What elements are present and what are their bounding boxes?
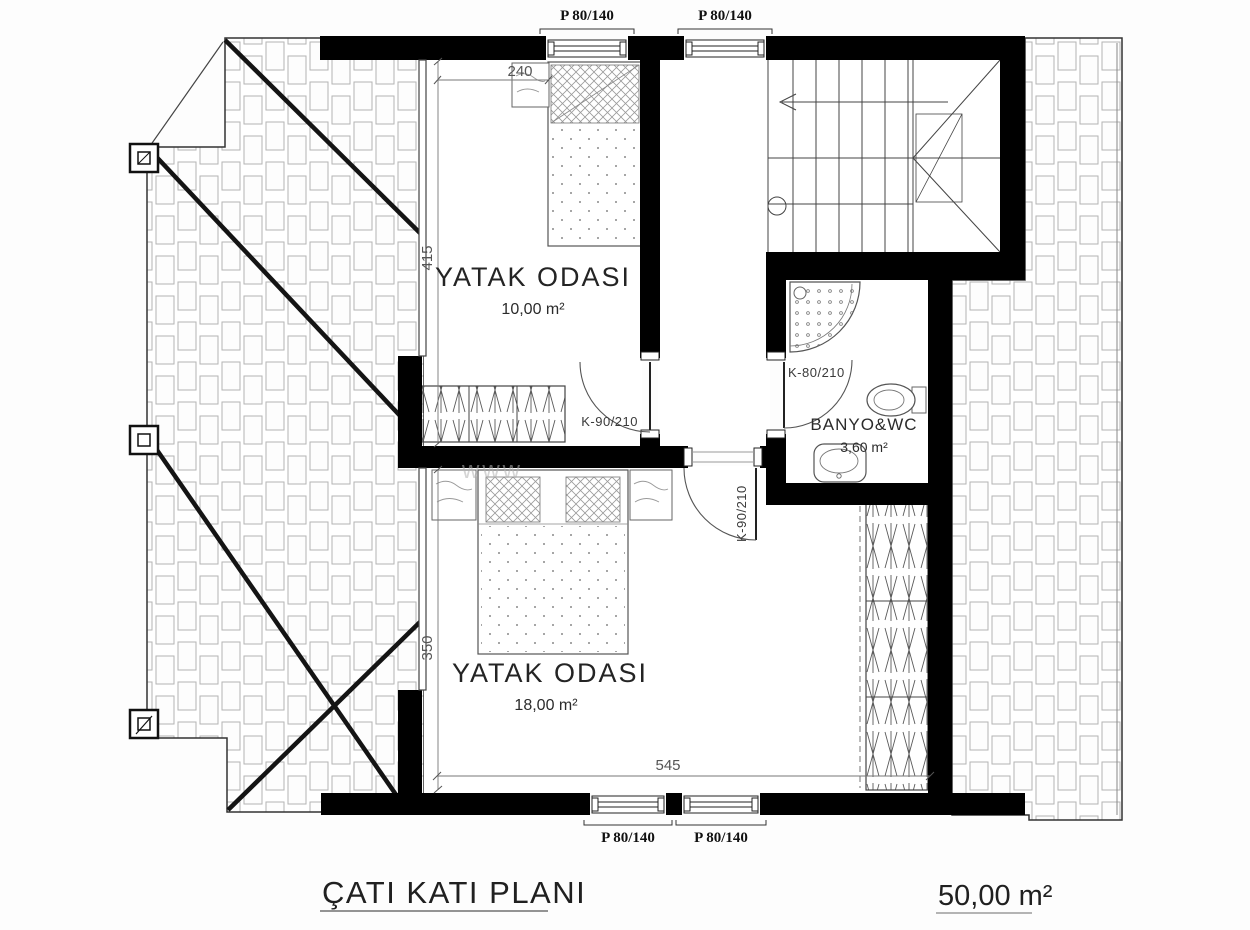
roof-left (147, 38, 424, 812)
post-marker-middle (130, 426, 158, 454)
wardrobe-bedroom1 (421, 386, 565, 442)
door-label: K-90/210 (734, 485, 749, 542)
window-label: P 80/140 (694, 830, 748, 846)
plan-title: ÇATI KATI PLANI (322, 875, 586, 910)
door-label: K-90/210 (581, 414, 638, 429)
post-marker-bottom (130, 710, 158, 738)
stairwell-floor (766, 58, 1002, 254)
shower-drain (794, 287, 806, 299)
toilet (867, 384, 926, 416)
dimension-label: 545 (655, 757, 680, 774)
window-label: P 80/140 (560, 8, 614, 24)
bathroom-name: BANYO&WC (810, 415, 917, 434)
dimension-label: 350 (419, 635, 436, 660)
floor-plan-canvas: P 80/140 P 80/140 P 80/140 P 80/140 K-90… (0, 0, 1250, 930)
double-bed (478, 470, 628, 654)
pillow (566, 477, 620, 522)
single-bed (548, 62, 642, 246)
mattress (481, 526, 625, 652)
nightstand-right-bedroom2 (630, 470, 672, 520)
window-label: P 80/140 (601, 830, 655, 846)
dimension-label: 240 (507, 63, 532, 80)
bedroom1-area: 10,00 m² (501, 301, 565, 318)
wardrobe-bedroom2 (860, 504, 928, 790)
bathroom-area: 3,60 m² (840, 439, 888, 455)
door-label: K-80/210 (788, 365, 845, 380)
hall-floor (658, 58, 770, 450)
bedroom2-name: YATAK ODASI (452, 658, 648, 688)
mattress (551, 126, 639, 243)
bedroom2-area: 18,00 m² (514, 697, 578, 714)
floor-plan-page: P 80/140 P 80/140 P 80/140 P 80/140 K-90… (0, 0, 1250, 930)
window-label: P 80/140 (698, 8, 752, 24)
bedroom1-name: YATAK ODASI (435, 262, 631, 292)
dimension-label: 415 (419, 245, 436, 270)
total-area: 50,00 m² (938, 880, 1053, 912)
post-marker-top (130, 144, 158, 172)
watermark: www (461, 457, 523, 484)
